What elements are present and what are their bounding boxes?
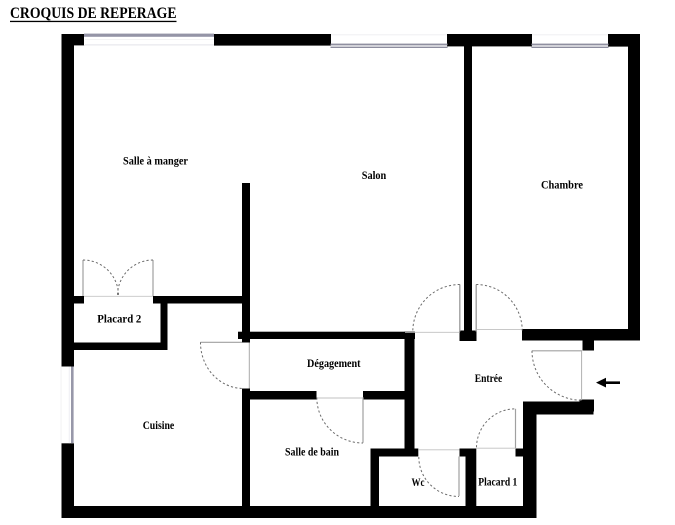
svg-text:Salle de bain: Salle de bain: [285, 445, 339, 459]
svg-text:CROQUIS DE REPERAGE: CROQUIS DE REPERAGE: [10, 5, 177, 22]
svg-text:Chambre: Chambre: [541, 178, 584, 192]
svg-text:Entrée: Entrée: [475, 371, 503, 385]
svg-text:Dégagement: Dégagement: [307, 356, 361, 370]
svg-text:Wc: Wc: [412, 475, 426, 489]
svg-text:Cuisine: Cuisine: [143, 418, 175, 432]
svg-text:Salon: Salon: [362, 168, 387, 182]
svg-text:Placard 1: Placard 1: [478, 474, 517, 488]
svg-text:Salle à manger: Salle à manger: [123, 153, 189, 167]
svg-text:Placard 2: Placard 2: [97, 312, 141, 326]
